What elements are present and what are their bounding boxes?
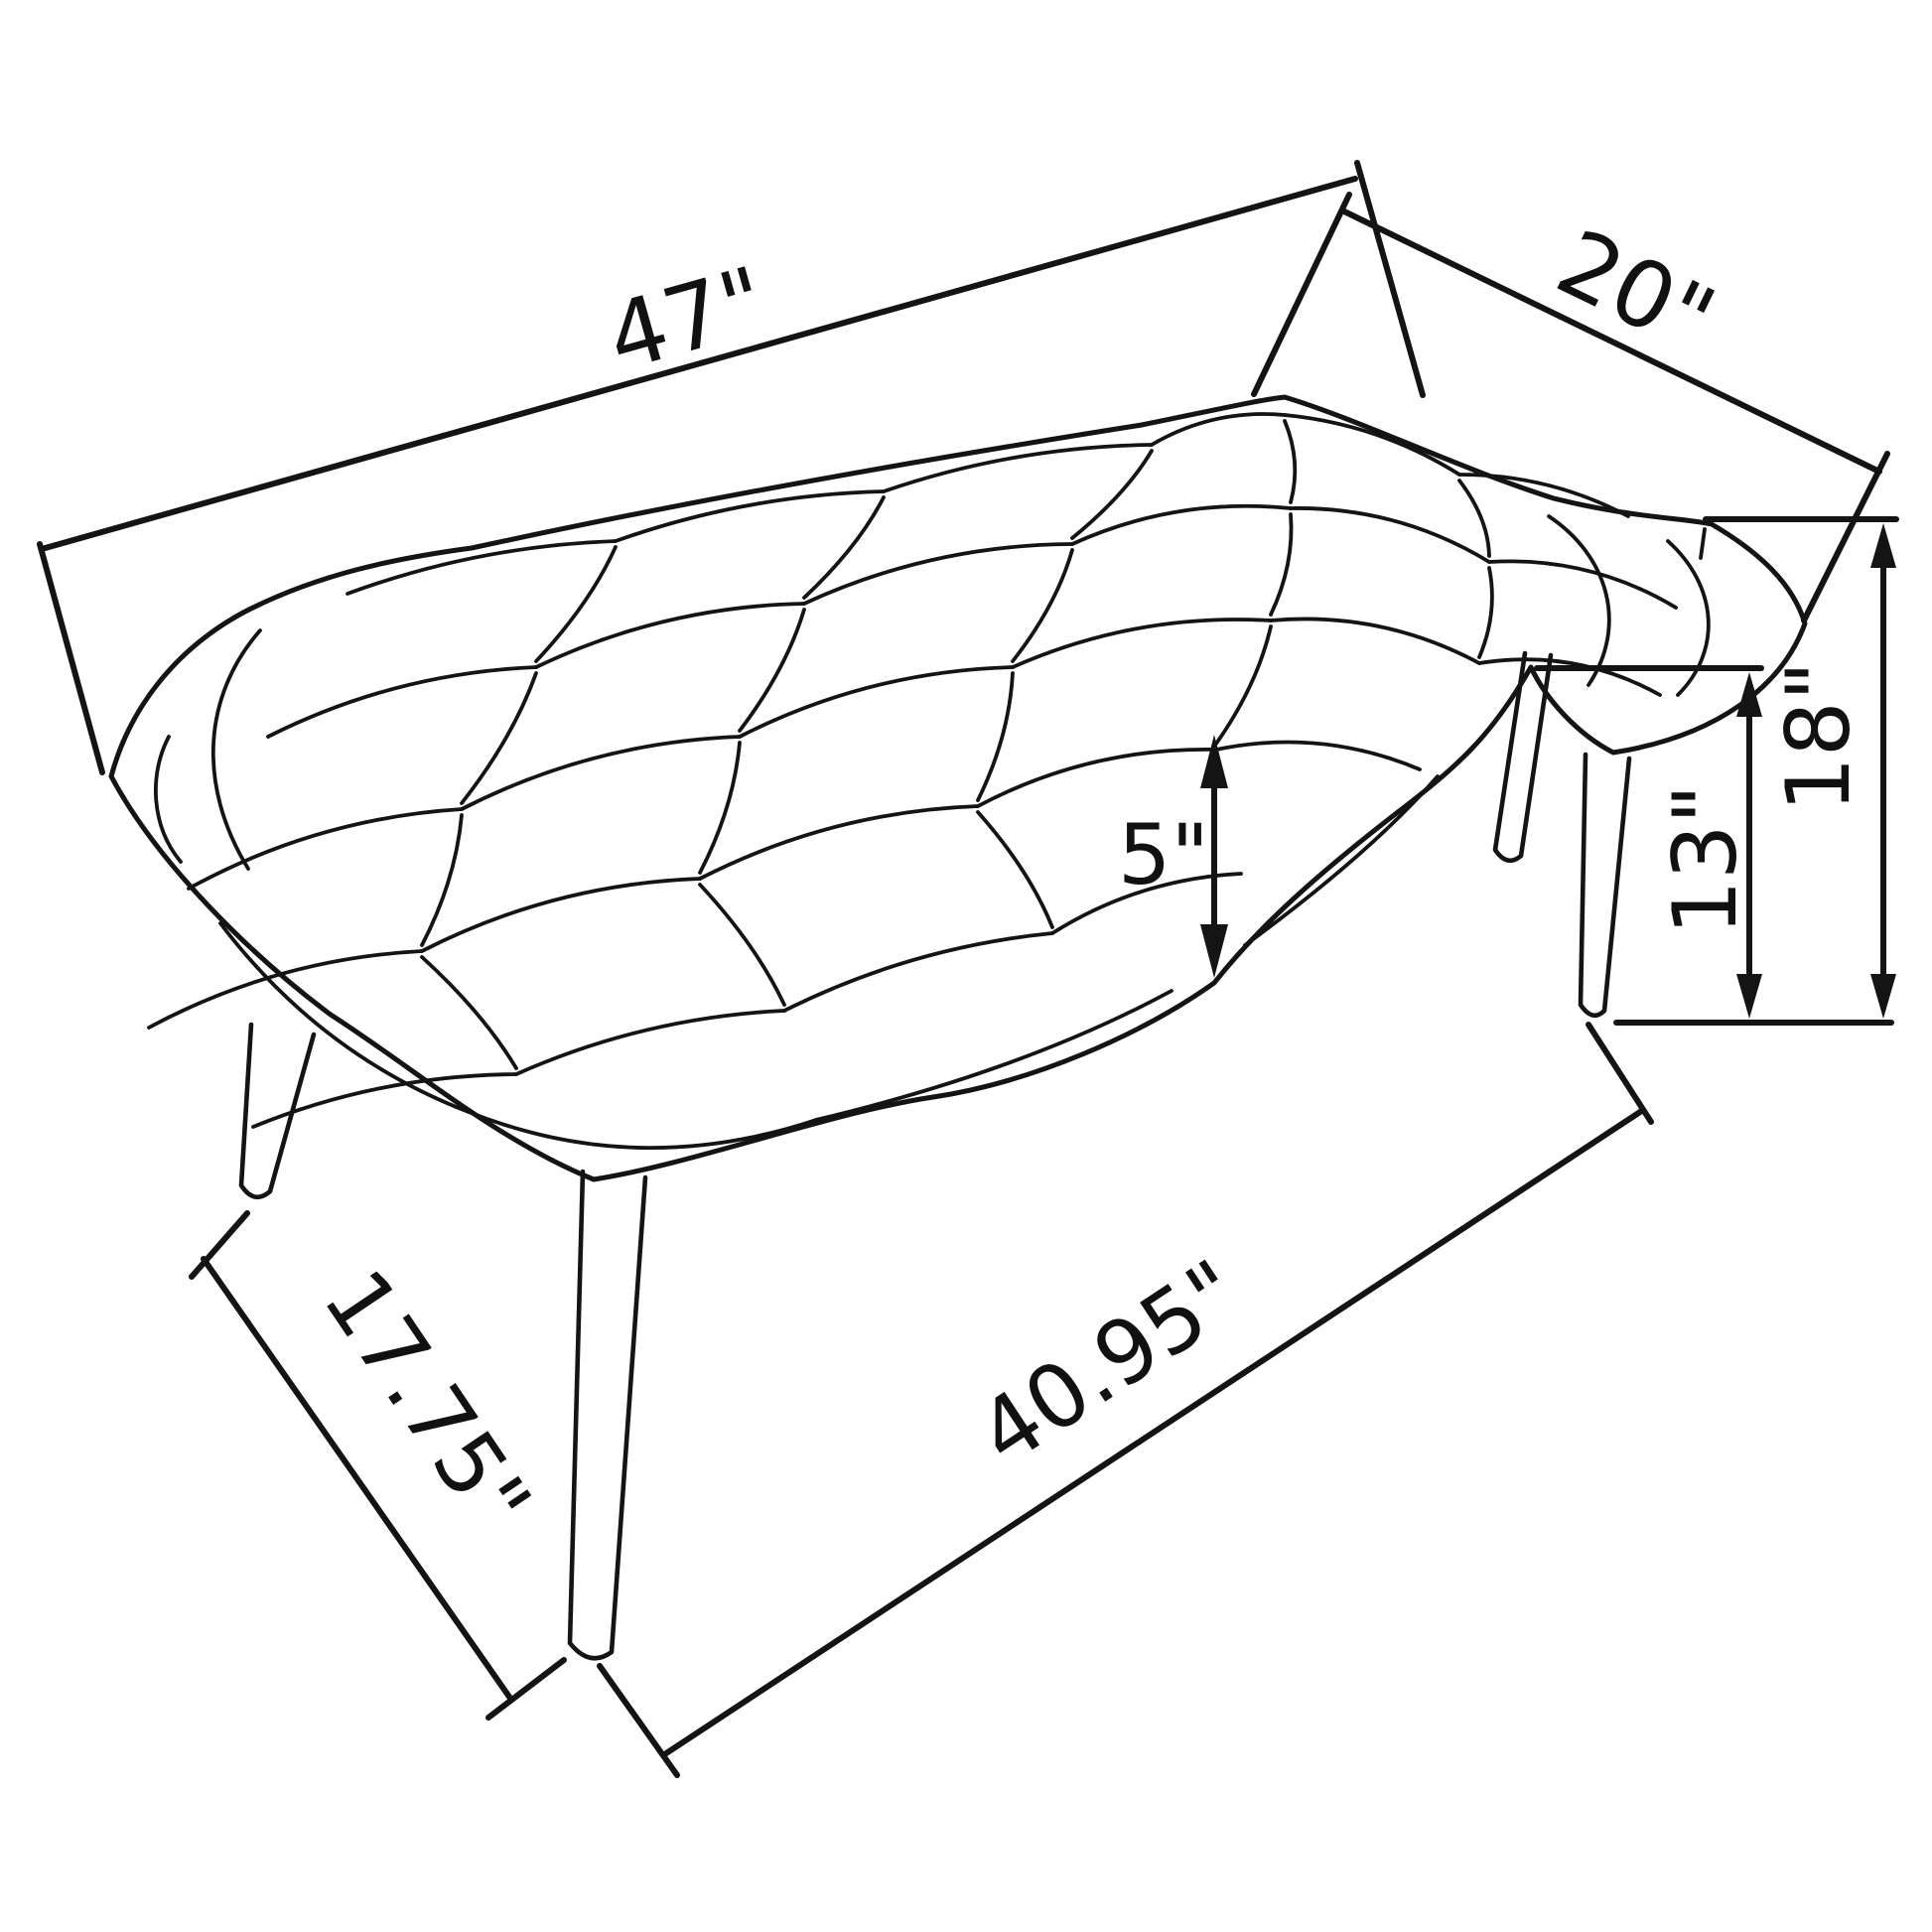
tuft-seam xyxy=(1291,508,1489,562)
tuft-seam xyxy=(1013,620,1271,667)
dim-label-depth: 20" xyxy=(1542,209,1730,374)
tuft-seam xyxy=(1271,619,1479,663)
tuft-seam xyxy=(1479,568,1492,657)
arrowhead-up xyxy=(1736,672,1762,717)
tuft-seam xyxy=(516,1011,784,1074)
tuft-seam xyxy=(616,491,884,541)
tuft-seam xyxy=(978,673,1013,800)
arrowhead-up xyxy=(1200,735,1228,788)
extension-line-right xyxy=(1588,1025,1651,1122)
dim-label-leg-height: 13" xyxy=(1654,784,1756,935)
extension-line-left xyxy=(600,1666,677,1775)
diagram-canvas: 47" 20" 18" 13" 5" 17.75" xyxy=(0,0,1932,1932)
extension-line-right xyxy=(1804,454,1887,621)
bench-dimension-drawing: 47" 20" 18" 13" 5" 17.75" xyxy=(0,0,1932,1932)
tuft-seam xyxy=(347,541,616,594)
dimension-depth-20: 20" xyxy=(1254,195,1887,621)
dim-label-height: 18" xyxy=(1767,661,1869,812)
extension-line-top xyxy=(192,1213,247,1277)
tuft-seam xyxy=(978,812,1052,927)
tuft-corner-crease xyxy=(1701,529,1705,558)
extension-line-right xyxy=(1357,163,1423,395)
arrowhead-down xyxy=(1736,974,1762,1019)
bottom-scallop-3 xyxy=(816,991,1172,1120)
dimension-side-spread-1775: 17.75" xyxy=(192,1213,564,1718)
bench-seat-outline xyxy=(111,397,1805,1179)
dim-label-side-spread: 17.75" xyxy=(304,1252,551,1550)
dimension-height-18: 18" xyxy=(1706,519,1896,1019)
tuft-seam xyxy=(1072,506,1291,544)
dimension-cushion-5: 5" xyxy=(1118,735,1228,978)
bench-leg-rear-left xyxy=(241,1025,314,1197)
tuft-seam xyxy=(1479,659,1660,695)
arrowhead-up xyxy=(1870,523,1896,568)
tuft-curl-right-outer xyxy=(1668,541,1709,695)
tuft-curl-left-outer xyxy=(213,630,260,869)
extension-line-left xyxy=(40,544,102,772)
tuft-seam xyxy=(700,806,978,879)
tuft-seam xyxy=(804,497,884,598)
tuft-seam xyxy=(1216,743,1420,769)
dimension-line xyxy=(663,1110,1643,1755)
tuft-seam xyxy=(1285,415,1459,475)
dim-label-front-spread: 40.95" xyxy=(960,1240,1259,1485)
tuft-seam xyxy=(422,957,516,1068)
tuft-seam xyxy=(422,879,700,951)
tuft-seam xyxy=(462,673,536,803)
tuft-seam xyxy=(700,885,784,1005)
tuft-seam xyxy=(700,743,740,873)
tuft-seam xyxy=(740,667,1013,737)
dim-label-cushion: 5" xyxy=(1118,806,1209,903)
tuft-curl-left-inner xyxy=(156,737,181,862)
tuft-seam xyxy=(1216,626,1271,744)
extension-line-left xyxy=(1254,195,1349,394)
bench xyxy=(111,397,1805,1658)
tuft-seam xyxy=(784,933,1052,1011)
tuft-seam xyxy=(268,667,536,737)
tuft-seam xyxy=(884,445,1152,491)
dimension-length-47: 47" xyxy=(40,163,1423,772)
tuft-seam xyxy=(1489,561,1676,608)
dim-label-length: 47" xyxy=(596,247,776,392)
extension-line-bottom xyxy=(488,1660,564,1718)
tuft-seam xyxy=(978,750,1216,806)
tuft-seam xyxy=(149,951,422,1028)
tuft-seam xyxy=(189,809,462,889)
tuft-seam xyxy=(1459,481,1489,556)
tuft-seam xyxy=(1285,421,1295,502)
tuft-seam xyxy=(422,815,462,945)
tuft-seam xyxy=(1013,550,1072,661)
arrowhead-down xyxy=(1870,974,1896,1019)
tuft-seam xyxy=(462,737,740,809)
tuft-seam xyxy=(1271,514,1292,615)
bench-leg-front-left xyxy=(570,1172,645,1658)
bench-leg-front-right xyxy=(1581,755,1629,1016)
tuft-seam xyxy=(536,547,616,661)
tuft-seam xyxy=(1072,451,1152,538)
